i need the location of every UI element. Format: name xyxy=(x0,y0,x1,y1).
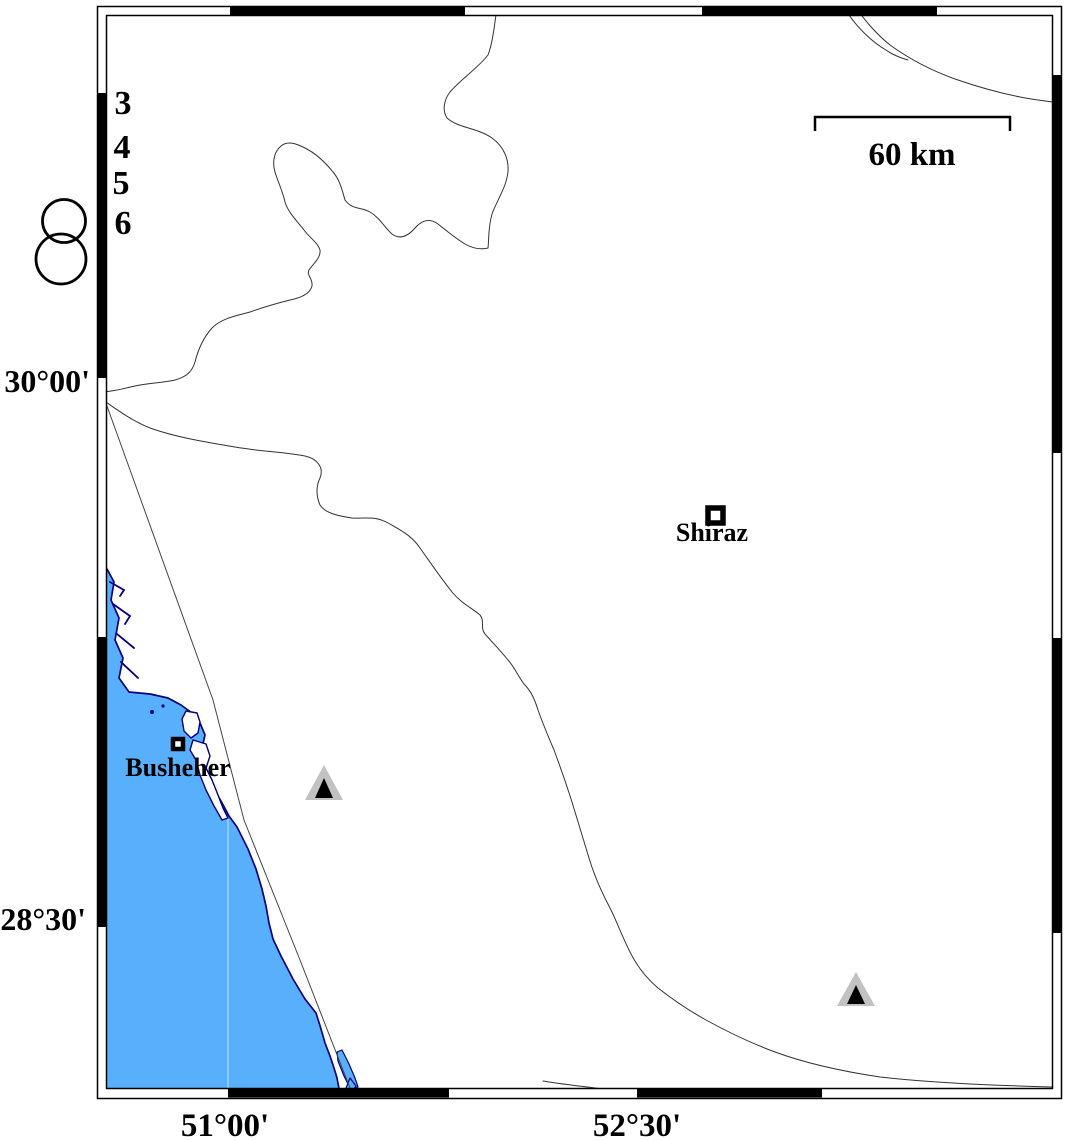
map-canvas: 60 km 3 4 5 6 Shiraz Busheher xyxy=(0,0,1066,1140)
magnitude-label-3: 3 xyxy=(115,85,132,122)
sea-fill xyxy=(107,568,340,1089)
islet xyxy=(161,704,164,707)
map-figure: 60 km 3 4 5 6 Shiraz Busheher xyxy=(0,0,1066,1140)
river-line-northeast xyxy=(855,7,1053,102)
river-fork-northeast xyxy=(849,15,908,60)
lon-label-51-00: 51°00' xyxy=(181,1108,269,1140)
magnitude-label-4: 4 xyxy=(114,129,131,166)
city-shiraz: Shiraz xyxy=(676,508,748,547)
river-line xyxy=(100,7,508,392)
lat-label-30-00: 30°00' xyxy=(4,363,90,399)
city-label-busheher: Busheher xyxy=(125,753,230,782)
scale-bar-label: 60 km xyxy=(868,137,955,173)
station-triangle-west xyxy=(305,765,343,800)
map-content: 60 km 3 4 5 6 Shiraz Busheher xyxy=(100,7,1053,1092)
lat-label-28-30: 28°30' xyxy=(0,901,86,937)
magnitude-legend-circles xyxy=(36,200,86,285)
magnitude-label-5: 5 xyxy=(113,165,130,202)
lon-label-52-30: 52°30' xyxy=(593,1108,681,1140)
magnitude-label-6: 6 xyxy=(115,205,132,242)
scale-bar: 60 km xyxy=(815,117,1010,173)
islet xyxy=(150,710,154,714)
magnitude-legend: 3 4 5 6 xyxy=(113,85,132,242)
station-triangle-southeast xyxy=(837,972,875,1006)
city-marker-busheher xyxy=(173,739,183,749)
city-label-shiraz: Shiraz xyxy=(676,518,748,547)
